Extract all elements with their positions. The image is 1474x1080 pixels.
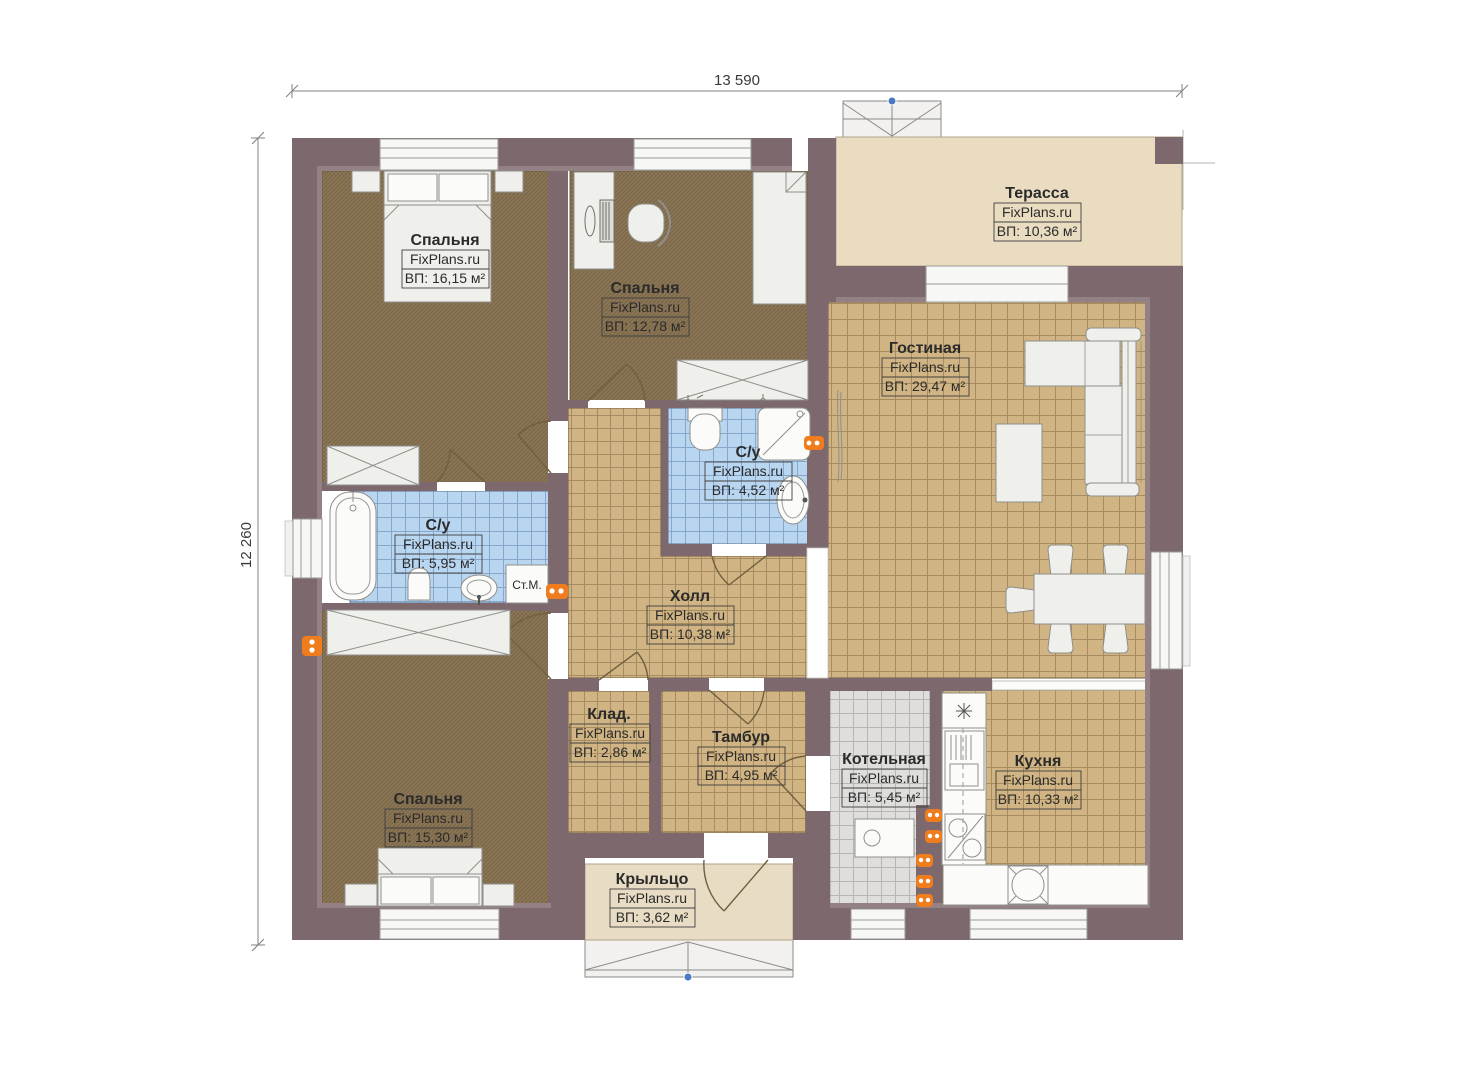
svg-text:FixPlans.ru: FixPlans.ru: [713, 463, 783, 479]
svg-text:ВП: 5,45 м²: ВП: 5,45 м²: [848, 789, 921, 805]
svg-text:Клад.: Клад.: [587, 706, 630, 723]
svg-text:Кухня: Кухня: [1015, 753, 1062, 770]
svg-text:FixPlans.ru: FixPlans.ru: [890, 359, 960, 375]
svg-text:Гостиная: Гостиная: [889, 340, 961, 357]
svg-text:С/у: С/у: [736, 444, 761, 461]
svg-text:Спальня: Спальня: [610, 280, 679, 297]
svg-text:FixPlans.ru: FixPlans.ru: [1003, 772, 1073, 788]
svg-text:Терасса: Терасса: [1005, 185, 1069, 202]
svg-text:FixPlans.ru: FixPlans.ru: [403, 536, 473, 552]
svg-text:Тамбур: Тамбур: [712, 729, 770, 746]
svg-text:FixPlans.ru: FixPlans.ru: [849, 770, 919, 786]
svg-text:12 260: 12 260: [238, 522, 255, 568]
svg-text:Спальня: Спальня: [393, 791, 462, 808]
svg-text:ВП: 29,47 м²: ВП: 29,47 м²: [885, 378, 966, 394]
svg-text:FixPlans.ru: FixPlans.ru: [655, 607, 725, 623]
svg-text:FixPlans.ru: FixPlans.ru: [575, 725, 645, 741]
svg-text:Спальня: Спальня: [410, 232, 479, 249]
svg-text:13 590: 13 590: [714, 72, 760, 89]
svg-text:ВП: 4,95 м²: ВП: 4,95 м²: [705, 767, 778, 783]
svg-text:ВП: 10,36 м²: ВП: 10,36 м²: [997, 223, 1078, 239]
svg-text:FixPlans.ru: FixPlans.ru: [706, 748, 776, 764]
svg-text:FixPlans.ru: FixPlans.ru: [617, 890, 687, 906]
svg-text:FixPlans.ru: FixPlans.ru: [393, 810, 463, 826]
svg-text:ВП: 16,15 м²: ВП: 16,15 м²: [405, 270, 486, 286]
svg-text:Крыльцо: Крыльцо: [616, 871, 689, 888]
svg-text:ВП: 5,95 м²: ВП: 5,95 м²: [402, 555, 475, 571]
svg-text:ВП: 10,38 м²: ВП: 10,38 м²: [650, 626, 731, 642]
svg-text:Холл: Холл: [670, 588, 710, 605]
svg-text:FixPlans.ru: FixPlans.ru: [410, 251, 480, 267]
svg-text:ВП: 4,52 м²: ВП: 4,52 м²: [712, 482, 785, 498]
svg-text:ВП: 2,86 м²: ВП: 2,86 м²: [574, 744, 647, 760]
svg-text:С/у: С/у: [426, 517, 451, 534]
svg-text:ВП: 10,33 м²: ВП: 10,33 м²: [998, 791, 1079, 807]
svg-text:ВП: 3,62 м²: ВП: 3,62 м²: [616, 909, 689, 925]
svg-text:ВП: 12,78 м²: ВП: 12,78 м²: [605, 318, 686, 334]
svg-text:Котельная: Котельная: [842, 751, 926, 768]
svg-text:FixPlans.ru: FixPlans.ru: [610, 299, 680, 315]
svg-text:ВП: 15,30 м²: ВП: 15,30 м²: [388, 829, 469, 845]
svg-text:Ст.М.: Ст.М.: [512, 578, 542, 592]
svg-text:FixPlans.ru: FixPlans.ru: [1002, 204, 1072, 220]
